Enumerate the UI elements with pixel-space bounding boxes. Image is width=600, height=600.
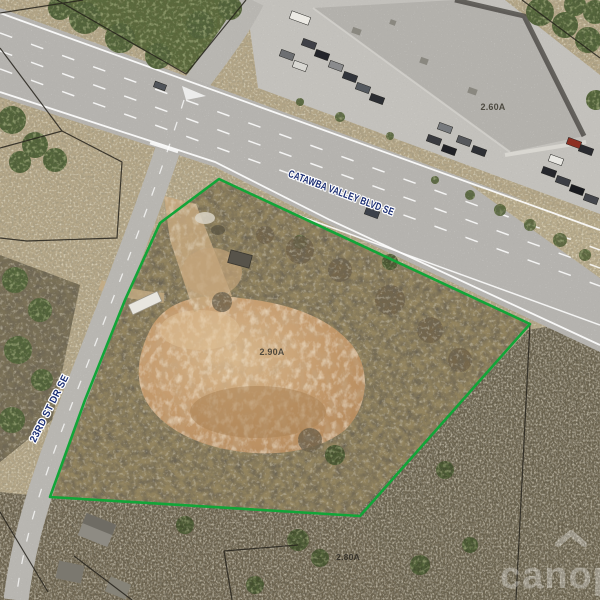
dirt-highlight bbox=[160, 310, 240, 350]
debris-dark bbox=[211, 225, 225, 235]
aerial-map-canvas: CATAWBA VALLEY BLVD SE 23RD ST DR SE 2.9… bbox=[0, 0, 600, 600]
acreage-label-south-parcel: 2.80A bbox=[336, 552, 360, 562]
debris-pile bbox=[195, 212, 215, 224]
acreage-label-north-parcel: 2.60A bbox=[480, 102, 505, 112]
aerial-parcel-map: CATAWBA VALLEY BLVD SE 23RD ST DR SE 2.9… bbox=[0, 0, 600, 600]
acreage-label-subject: 2.90A bbox=[259, 347, 284, 357]
watermark-text: canopy bbox=[500, 555, 600, 597]
